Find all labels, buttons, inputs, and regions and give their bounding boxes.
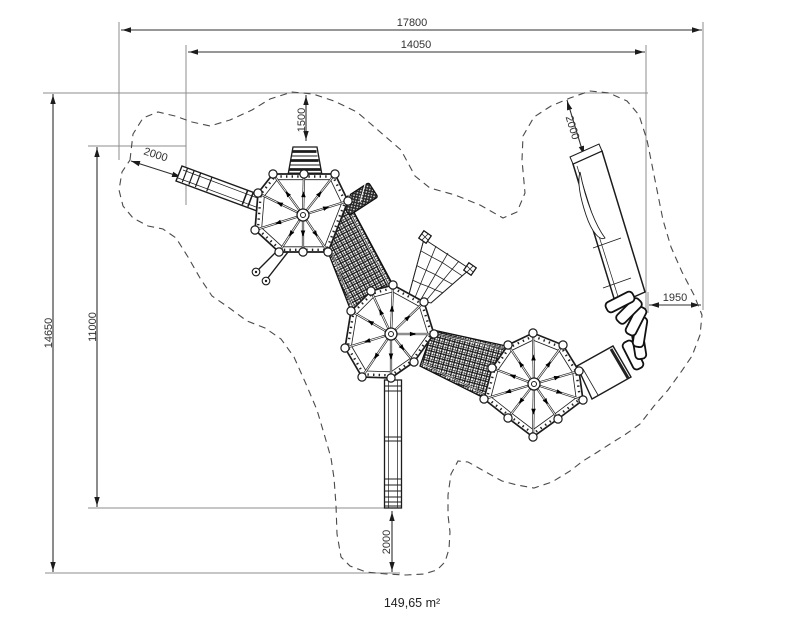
dim-label-overall-height: 14650 xyxy=(43,318,55,349)
dim-label-top-ramp-offset: 1500 xyxy=(296,108,308,132)
plan-drawing-svg: 17800 14050 14650 11000 1500 2000 2000 1… xyxy=(0,0,800,625)
dim-label-inner-width: 14050 xyxy=(401,39,432,51)
support-poles xyxy=(252,251,288,285)
entry-slide xyxy=(176,166,263,211)
dim-label-right-slide-offset: 2000 xyxy=(563,114,582,141)
dim-label-inner-height: 11000 xyxy=(87,312,99,342)
straight-slide xyxy=(385,380,402,508)
dim-label-overall-width: 17800 xyxy=(397,17,428,29)
area-label: 149,65 m² xyxy=(384,596,440,610)
dim-label-right-side-offset: 1950 xyxy=(663,292,687,304)
platforms xyxy=(251,170,587,441)
tube-slide xyxy=(570,144,648,399)
dim-label-left-slide-offset: 2000 xyxy=(142,146,169,165)
playground-plan-drawing: 17800 14050 14650 11000 1500 2000 2000 1… xyxy=(0,0,800,625)
dim-label-bottom-slide-offset: 2000 xyxy=(381,530,393,554)
fan-net xyxy=(408,231,476,303)
